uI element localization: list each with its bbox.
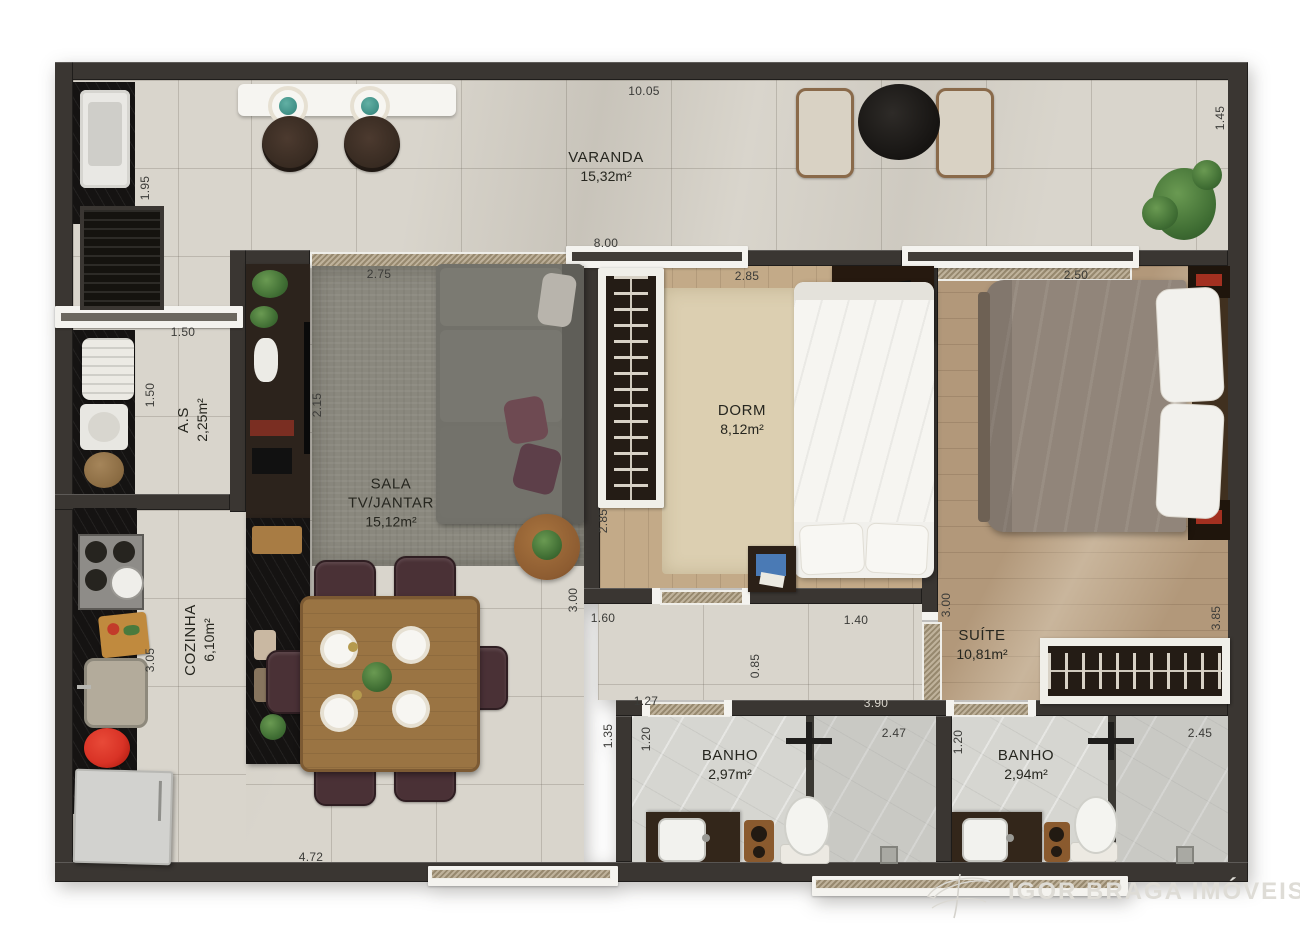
dimension-label: 3.05: [143, 648, 157, 673]
wash-basin: [962, 818, 1008, 862]
room-label-cozinha: COZINHA 6,10m²: [182, 604, 218, 676]
refrigerator: [73, 769, 173, 866]
burner: [85, 541, 107, 563]
room-label-varanda: VARANDA 15,32m²: [568, 149, 644, 185]
faucet: [702, 834, 710, 842]
wall: [584, 588, 660, 604]
ac-condenser-grill: [80, 206, 164, 310]
dimension-label: 2.45: [1188, 726, 1213, 740]
wall: [230, 250, 246, 512]
pot: [110, 566, 144, 600]
room-name: BANHO: [702, 747, 758, 766]
dimension-label: 0.85: [748, 654, 762, 679]
laundry-basket: [88, 412, 120, 442]
shower-valve-icon: [806, 722, 812, 760]
throw-pillow: [502, 395, 549, 445]
door-jamb: [724, 700, 732, 716]
room-name: VARANDA: [568, 149, 644, 168]
wash-basin: [658, 818, 706, 862]
plant-on-island: [260, 714, 286, 740]
pillow: [1155, 402, 1225, 519]
pillow: [865, 522, 930, 575]
room-area: 10,81m²: [956, 646, 1007, 664]
blanket-fold: [794, 282, 934, 300]
laundry-basket-shelf: [80, 404, 128, 450]
shower-drain: [880, 846, 898, 864]
room-area: 2,25m²: [194, 398, 212, 442]
cooktop: [78, 534, 144, 610]
pillow: [1155, 286, 1225, 403]
room-label-sala: SALA TV/JANTAR 15,12m²: [345, 475, 437, 530]
dimension-label: 2.47: [882, 726, 907, 740]
red-book: [1196, 274, 1222, 286]
candle-holder: [348, 642, 358, 652]
wood-speaker: [744, 820, 774, 862]
dimension-label: 3.00: [939, 593, 953, 618]
speaker-cone: [753, 846, 765, 858]
wall: [1137, 250, 1228, 266]
wood-speaker: [1044, 822, 1070, 862]
dimension-label: 2.85: [735, 269, 760, 283]
room-name: COZINHA: [182, 604, 201, 676]
room-area: 15,12m²: [345, 513, 437, 531]
hall-floor: [598, 596, 922, 700]
room-name: SALA TV/JANTAR: [345, 475, 437, 513]
door-jamb: [922, 612, 938, 620]
window-sill-hatch: [431, 869, 611, 879]
dimension-label: 1.95: [138, 176, 152, 201]
dimension-label: 3.00: [566, 588, 580, 613]
plant-leaves: [1142, 196, 1178, 230]
dimension-label: 3.90: [864, 696, 889, 710]
room-label-banho-2: BANHO 2,94m²: [998, 747, 1054, 783]
patio-chair: [796, 88, 854, 178]
dimension-label: 3.85: [1209, 606, 1223, 631]
wardrobe-interior: [1048, 646, 1222, 696]
igor-braga-logo: [920, 868, 1000, 924]
dimension-label: 1.20: [951, 730, 965, 755]
faucet: [1006, 834, 1014, 842]
pillow: [799, 522, 866, 575]
dimension-label: 1.50: [171, 325, 196, 339]
room-label-dorm: DORM 8,12m²: [718, 402, 766, 438]
toilet-bowl: [784, 796, 830, 856]
room-label-suite: SUÍTE 10,81m²: [956, 627, 1007, 663]
faucet: [77, 685, 91, 689]
sink-basin: [88, 102, 122, 166]
dinner-plate: [396, 630, 426, 660]
duvet: [794, 300, 934, 522]
dorm-bed: [794, 282, 934, 578]
room-area: 2,94m²: [998, 766, 1054, 784]
burner: [85, 569, 107, 591]
bar-stool: [344, 116, 400, 172]
orchid-vase: [254, 338, 278, 382]
dimension-label: 1.35: [601, 724, 615, 749]
hanger-bars: [1048, 653, 1222, 689]
dimension-label: 1.40: [844, 613, 869, 627]
tv-screen: [304, 322, 310, 454]
wall: [616, 716, 632, 862]
kitchen-sink: [84, 658, 148, 728]
door-jamb: [1028, 700, 1036, 716]
dimension-label: 1.27: [634, 694, 659, 708]
table-centerpiece: [362, 662, 392, 692]
speaker-cone: [1051, 846, 1062, 857]
shower-valve-icon: [1108, 722, 1114, 760]
greens: [123, 624, 140, 636]
suite-door-threshold: [922, 622, 942, 702]
plant-on-rack: [250, 306, 278, 328]
fridge-handle: [158, 781, 162, 821]
plant-leaves: [1192, 160, 1222, 190]
bath1-door-threshold: [648, 702, 730, 717]
tomato: [107, 622, 120, 635]
wall: [55, 62, 1248, 80]
bar-counter: [238, 84, 456, 116]
dimension-label: 4.72: [299, 850, 324, 864]
dimension-label: 1.45: [1213, 106, 1227, 131]
dimension-label: 2.75: [367, 267, 392, 281]
floor-plan-image: VARANDA 15,32m² SALA TV/JANTAR 15,12m² D…: [0, 0, 1300, 942]
burner: [113, 541, 135, 563]
room-area: 8,12m²: [718, 421, 766, 439]
media-box: [252, 448, 292, 474]
bath2-door-threshold: [952, 702, 1034, 717]
plant-on-rack: [252, 270, 288, 298]
wall: [936, 716, 952, 862]
dimension-label: 2.50: [1064, 268, 1089, 282]
patio-table: [858, 84, 940, 160]
dimension-label: 2.15: [310, 393, 324, 418]
throw-pillow: [537, 272, 578, 328]
dorm-nightstand: [748, 546, 796, 592]
candle-holder: [352, 690, 362, 700]
room-name: BANHO: [998, 747, 1054, 766]
suite-sliding-door: [902, 246, 1139, 268]
bar-stool: [262, 116, 318, 172]
serving-tray: [252, 526, 302, 554]
dinner-plate: [396, 694, 426, 724]
dorm-wardrobe: [598, 268, 664, 508]
dinner-plate: [324, 698, 354, 728]
shower-area: [814, 716, 936, 862]
dimension-label: 10.05: [628, 84, 660, 98]
books: [250, 420, 294, 436]
room-area: 2,97m²: [702, 766, 758, 784]
room-area: 6,10m²: [201, 604, 219, 676]
dimension-label: 1.60: [591, 611, 616, 625]
watermark-brand: IGOR BRAGA IMÓVEIS: [1008, 878, 1300, 906]
suite-wardrobe: [1040, 638, 1230, 704]
toilet-bowl: [1074, 796, 1118, 854]
room-name: A.S: [175, 398, 194, 442]
room-label-area-servico: A.S 2,25m²: [175, 398, 211, 442]
room-name: DORM: [718, 402, 766, 421]
dorm-door-threshold: [660, 590, 750, 605]
wall: [746, 250, 902, 266]
wall: [55, 62, 73, 882]
dimension-label: 8.00: [594, 236, 619, 250]
shower-drain: [1176, 846, 1194, 864]
room-label-banho-1: BANHO 2,97m²: [702, 747, 758, 783]
dimension-label: 2.85: [596, 509, 610, 534]
tv-rack: [246, 264, 310, 518]
bowl: [279, 97, 297, 115]
glass-panel: [908, 252, 1133, 261]
plant-on-table: [532, 530, 562, 560]
dimension-label: 1.50: [143, 383, 157, 408]
glass-panel: [61, 313, 237, 321]
door-jamb: [946, 700, 954, 716]
wall: [726, 700, 952, 716]
wicker-basket: [84, 452, 124, 488]
bowl: [361, 97, 379, 115]
apartment-floor-plan: VARANDA 15,32m² SALA TV/JANTAR 15,12m² D…: [0, 0, 1300, 942]
speaker-cone: [751, 826, 767, 842]
wardrobe-interior: [606, 276, 656, 500]
dimension-label: 1.20: [639, 727, 653, 752]
speaker-cone: [1049, 827, 1064, 842]
suite-varanda-threshold: [912, 266, 1132, 281]
wall: [1228, 62, 1248, 882]
bottom-window-1: [428, 866, 618, 886]
hanger-bars: [614, 276, 648, 500]
room-name: SUÍTE: [956, 627, 1007, 646]
red-pot: [84, 728, 130, 768]
door-jamb: [652, 588, 660, 604]
service-sink: [80, 90, 130, 188]
glass-panel: [572, 252, 742, 261]
patio-chair: [936, 88, 994, 178]
side-table: [514, 514, 580, 580]
laundry-tank-sink: [82, 338, 134, 400]
room-area: 15,32m²: [568, 168, 644, 186]
bed-foot-bench: [978, 292, 990, 522]
